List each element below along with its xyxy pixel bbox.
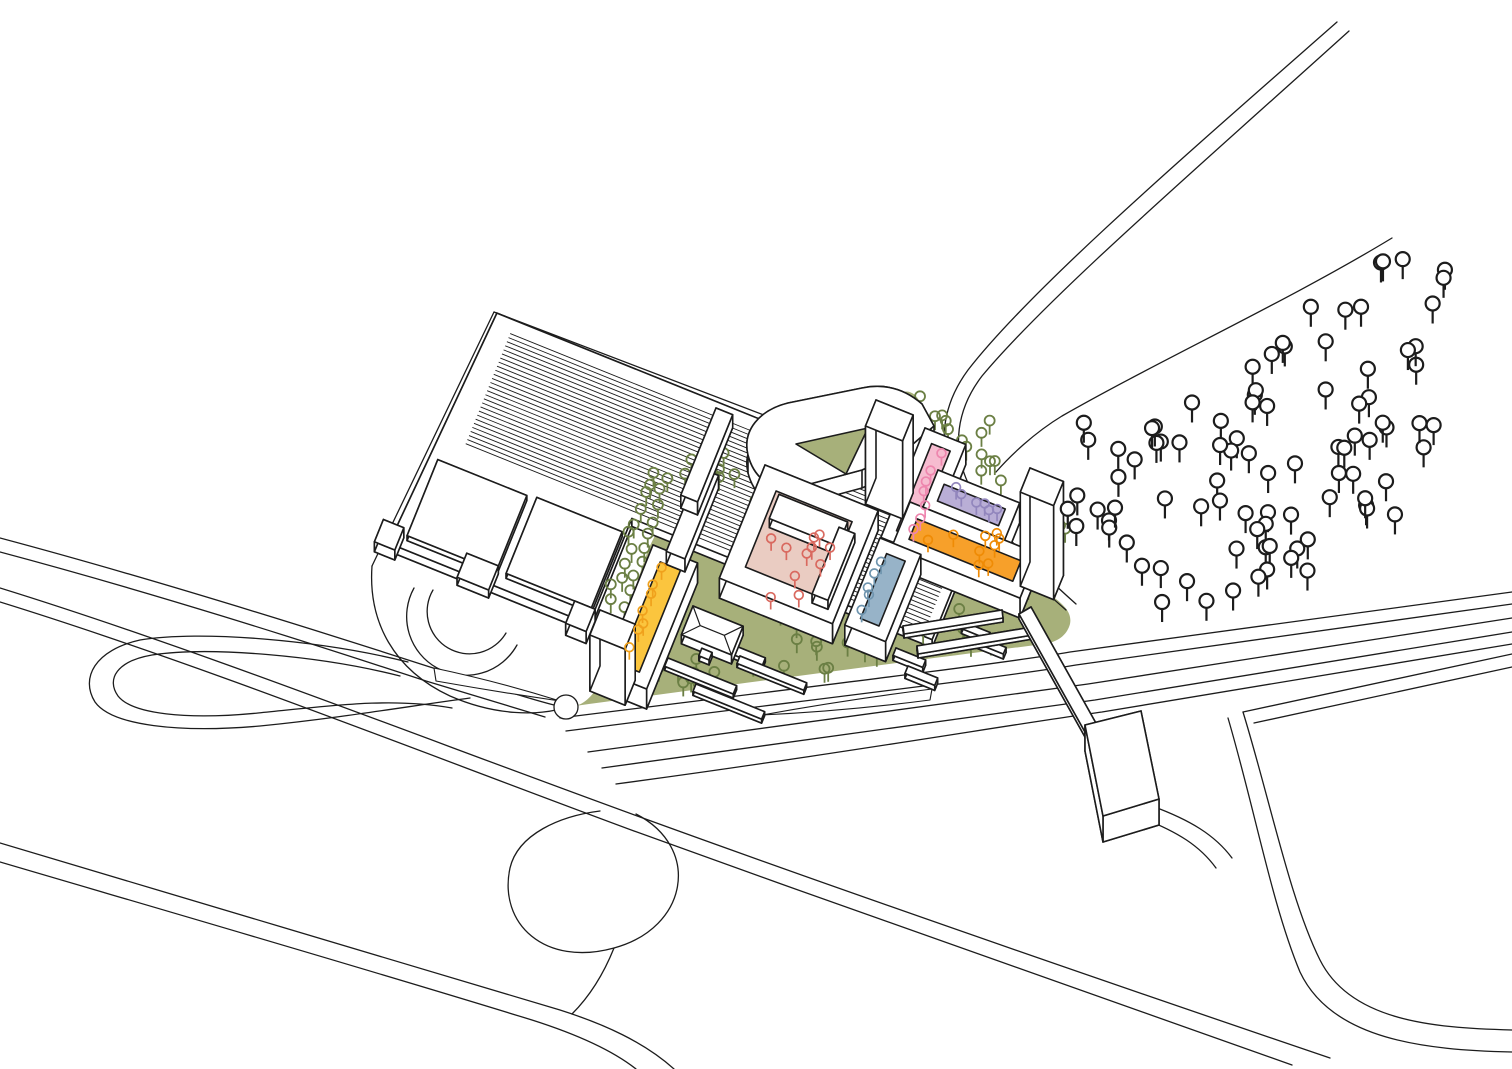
tree-crown — [976, 428, 986, 438]
ramp-loop-tail — [572, 948, 614, 1014]
tree-crown — [1213, 494, 1227, 508]
embankment-top-b — [1254, 667, 1512, 723]
tree-icon — [1304, 300, 1318, 327]
tree-crown — [1284, 551, 1298, 565]
tree-icon — [1361, 362, 1375, 389]
tree-crown — [1319, 334, 1333, 348]
tree-crown — [1426, 296, 1440, 310]
tree-icon — [1172, 435, 1186, 462]
tree-crown — [977, 449, 987, 459]
tree-crown — [1352, 397, 1366, 411]
tree-crown — [1111, 470, 1125, 484]
tree-crown — [1250, 522, 1264, 536]
embankment-edge-a — [1243, 712, 1512, 1030]
site-plan-page — [0, 0, 1512, 1069]
tree-crown — [1379, 474, 1393, 488]
tree-crown — [617, 573, 627, 583]
tree-icon — [1261, 466, 1275, 493]
tree-crown — [1401, 343, 1415, 357]
tree-crown — [1077, 416, 1091, 430]
tree-icon — [1338, 303, 1352, 330]
embankment-edge-b — [1228, 718, 1512, 1052]
pedestrian-bridge-landing — [1085, 711, 1159, 842]
tree-crown — [1354, 300, 1368, 314]
tree-icon — [1155, 595, 1169, 622]
tree-icon — [1226, 584, 1240, 611]
tree-icon — [1135, 559, 1149, 586]
tree-crown — [1070, 488, 1084, 502]
tree-crown — [1210, 474, 1224, 488]
tree-crown — [1172, 435, 1186, 449]
tree-icon — [1284, 551, 1298, 578]
tree-icon — [1214, 414, 1228, 441]
tree-icon — [1363, 433, 1377, 460]
tree-icon — [1288, 456, 1302, 483]
tree-icon — [1323, 490, 1337, 517]
tree-icon — [976, 428, 986, 447]
tree-crown — [1180, 574, 1194, 588]
tree-crown — [1154, 561, 1168, 575]
tree-icon — [1319, 382, 1333, 409]
tree-crown — [1158, 491, 1172, 505]
tree-crown — [1230, 542, 1244, 556]
tree-crown — [639, 543, 649, 553]
tree-crown — [1358, 491, 1372, 505]
tree-crown — [996, 475, 1006, 485]
tree-crown — [1332, 466, 1346, 480]
tree-crown — [1337, 441, 1351, 455]
tree-icon — [1230, 542, 1244, 569]
tree-icon — [1260, 399, 1274, 426]
tower-north — [866, 400, 914, 519]
tree-crown — [1214, 414, 1228, 428]
tree-crown — [1276, 336, 1290, 350]
tree-crown — [1251, 570, 1265, 584]
tree-crown — [620, 559, 630, 569]
tree-icon — [1346, 467, 1360, 494]
tree-crown — [1304, 300, 1318, 314]
tree-crown — [1260, 399, 1274, 413]
tree-icon — [1319, 334, 1333, 361]
tree-icon — [1300, 564, 1314, 591]
tree-icon — [976, 466, 986, 485]
tree-crown — [1338, 303, 1352, 317]
tree-crown — [627, 544, 637, 554]
tree-crown — [1128, 452, 1142, 466]
tree-icon — [1246, 395, 1260, 422]
tree-crown — [1226, 584, 1240, 598]
embankment-top-a — [1243, 654, 1512, 712]
tree-icon — [1427, 418, 1441, 445]
tree-crown — [1199, 594, 1213, 608]
tree-icon — [1332, 466, 1346, 493]
tree-crown — [1242, 446, 1256, 460]
tree-icon — [1120, 536, 1134, 563]
tree-icon — [996, 475, 1006, 494]
tree-crown — [628, 571, 638, 581]
roundabout — [554, 695, 578, 719]
tree-icon — [1213, 494, 1227, 521]
tree-crown — [1246, 395, 1260, 409]
tree-icon — [1251, 570, 1265, 597]
tree-crown — [1437, 271, 1451, 285]
tree-icon — [977, 449, 987, 468]
tree-crown — [1376, 254, 1390, 268]
tree-icon — [1158, 491, 1172, 518]
tree-icon — [1242, 446, 1256, 473]
tree-crown — [1246, 360, 1260, 374]
tree-icon — [1352, 397, 1366, 424]
tree-icon — [1111, 470, 1125, 497]
tree-crown — [1069, 519, 1083, 533]
tree-crown — [1388, 507, 1402, 521]
tree-crown — [1396, 252, 1410, 266]
tree-crown — [1239, 506, 1253, 520]
tree-crown — [1108, 501, 1122, 515]
tree-icon — [1379, 474, 1393, 501]
tree-crown — [1361, 362, 1375, 376]
landing-drive-a — [1152, 806, 1232, 858]
tree-icon — [1284, 508, 1298, 535]
tower-west — [590, 610, 635, 705]
tree-crown — [1319, 382, 1333, 396]
tree-crown — [1265, 347, 1279, 361]
ramp-loop — [508, 811, 678, 953]
site-plan-canvas — [0, 0, 1512, 1069]
tree-crown — [1263, 539, 1277, 553]
tree-icon — [1417, 440, 1431, 467]
tree-icon — [1354, 300, 1368, 327]
tree-crown — [1427, 418, 1441, 432]
parking-arc-outer — [407, 588, 517, 675]
tree-icon — [1199, 594, 1213, 621]
tree-crown — [1300, 564, 1314, 578]
tree-icon — [1194, 499, 1208, 526]
tree-icon — [1069, 519, 1083, 546]
tree-crown — [1145, 421, 1159, 435]
tree-crown — [1284, 508, 1298, 522]
merge-island-east — [762, 689, 932, 715]
tree-crown — [1323, 490, 1337, 504]
tree-icon — [1185, 395, 1199, 422]
tree-icon — [1180, 574, 1194, 601]
tree-crown — [1213, 438, 1227, 452]
tree-icon — [1111, 442, 1125, 469]
highway-south-b — [0, 862, 636, 1069]
tree-crown — [1111, 442, 1125, 456]
slope-path — [996, 238, 1392, 472]
tree-icon — [1154, 561, 1168, 588]
tree-crown — [1185, 395, 1199, 409]
tree-crown — [1135, 559, 1149, 573]
tree-icon — [1437, 271, 1451, 298]
tree-icon — [1412, 416, 1426, 443]
tree-crown — [1061, 502, 1075, 516]
tree-crown — [1091, 503, 1105, 517]
tree-crown — [1412, 416, 1426, 430]
teardrop-inner — [113, 652, 452, 716]
tower-east — [1020, 468, 1063, 600]
tree-crown — [1288, 456, 1302, 470]
tree-icon — [1426, 296, 1440, 323]
tree-crown — [1155, 595, 1169, 609]
tree-icon — [1396, 252, 1410, 279]
parking-arc-inner — [427, 590, 506, 654]
tree-icon — [1388, 507, 1402, 534]
tree-field — [1061, 252, 1452, 622]
tree-crown — [985, 416, 995, 426]
tree-crown — [1194, 499, 1208, 513]
tree-icon — [1128, 452, 1142, 479]
tree-crown — [1363, 433, 1377, 447]
tree-crown — [1346, 467, 1360, 481]
tree-crown — [1376, 416, 1390, 430]
tree-crown — [1261, 466, 1275, 480]
tree-crown — [1120, 536, 1134, 550]
merge-island-west — [434, 668, 560, 701]
tree-crown — [1348, 429, 1362, 443]
tree-icon — [1265, 347, 1279, 374]
